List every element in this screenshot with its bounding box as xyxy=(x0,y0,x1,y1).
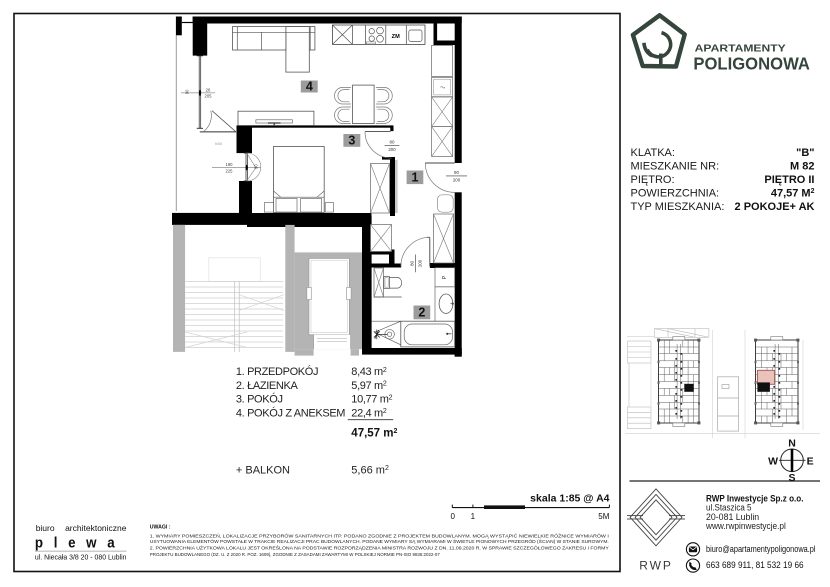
svg-text:0: 0 xyxy=(450,512,455,521)
svg-text:10,77 m2: 10,77 m2 xyxy=(351,394,392,406)
svg-text:biuro: biuro xyxy=(36,523,55,533)
svg-text:PIĘTRO II: PIĘTRO II xyxy=(764,174,814,186)
svg-text:5,97 m2: 5,97 m2 xyxy=(351,380,387,392)
svg-text:225: 225 xyxy=(226,168,234,173)
svg-text:200: 200 xyxy=(418,259,423,267)
svg-text:1: 1 xyxy=(471,512,476,521)
svg-text:RWP: RWP xyxy=(639,558,672,572)
svg-text:ul. Niecała 3/8 20 - 080 Lubl: ul. Niecała 3/8 20 - 080 Lublin xyxy=(35,554,127,561)
svg-text:"B": "B" xyxy=(796,147,814,159)
svg-text:biuro@apartamentypoligonowa.pl: biuro@apartamentypoligonowa.pl xyxy=(706,544,816,554)
svg-text:E: E xyxy=(807,455,814,467)
svg-text:2 POKOJE+ AK: 2 POKOJE+ AK xyxy=(735,201,815,213)
svg-text:90: 90 xyxy=(454,170,459,175)
svg-text:skala 1:85 @ A4: skala 1:85 @ A4 xyxy=(530,493,609,505)
svg-text:PIĘTRO:: PIĘTRO: xyxy=(631,174,675,186)
svg-text:47,57 M2: 47,57 M2 xyxy=(771,188,815,200)
svg-text:S: S xyxy=(788,472,795,484)
svg-text:www.rwpinwestycje.pl: www.rwpinwestycje.pl xyxy=(705,521,786,531)
svg-text:KLATKA:: KLATKA: xyxy=(631,147,675,159)
svg-text:200: 200 xyxy=(453,177,461,182)
svg-text:plewa: plewa xyxy=(35,534,125,551)
svg-text:663 689 911, 81 532 19 66: 663 689 911, 81 532 19 66 xyxy=(706,560,804,570)
svg-text:47,57 m2: 47,57 m2 xyxy=(351,427,397,439)
svg-text:5M: 5M xyxy=(598,512,609,521)
svg-text:M 82: M 82 xyxy=(790,161,814,173)
svg-text:MIESZKANIE NR:: MIESZKANIE NR: xyxy=(631,161,720,173)
svg-text:+ BALKON: + BALKON xyxy=(236,464,290,476)
svg-text:1. PRZEDPOKÓJ: 1. PRZEDPOKÓJ xyxy=(236,365,318,378)
svg-text:3. POKÓJ: 3. POKÓJ xyxy=(236,393,283,406)
svg-text:W: W xyxy=(768,455,778,467)
svg-text:4. POKÓJ Z ANEKSEM: 4. POKÓJ Z ANEKSEM xyxy=(236,406,345,419)
svg-text:UWAGI :: UWAGI : xyxy=(150,525,171,531)
svg-text:26: 26 xyxy=(206,87,211,92)
svg-text:TYP MIESZKANIA:: TYP MIESZKANIA: xyxy=(631,201,725,213)
svg-text:22,4 m2: 22,4 m2 xyxy=(351,407,387,419)
svg-text:POLIGONOWA: POLIGONOWA xyxy=(693,53,810,73)
svg-text:2. ŁAZIENKA: 2. ŁAZIENKA xyxy=(236,380,299,392)
svg-text:3: 3 xyxy=(348,134,355,148)
svg-text:PROJEKTU BUDOWLANEGO (DZ. U. Z: PROJEKTU BUDOWLANEGO (DZ. U. Z 2020 R. P… xyxy=(150,552,440,558)
svg-text:5,66 m2: 5,66 m2 xyxy=(351,464,389,476)
svg-text:N: N xyxy=(788,438,796,450)
svg-text:80: 80 xyxy=(410,260,415,265)
svg-text:200: 200 xyxy=(388,147,396,152)
svg-text:80: 80 xyxy=(390,140,395,145)
svg-text:4: 4 xyxy=(306,80,313,94)
svg-text:90: 90 xyxy=(185,89,190,94)
svg-text:h85: h85 xyxy=(215,141,222,146)
svg-text:205: 205 xyxy=(205,94,213,99)
svg-text:2: 2 xyxy=(418,306,425,320)
svg-text:architektoniczne: architektoniczne xyxy=(65,523,127,533)
svg-text:P: P xyxy=(442,275,448,279)
svg-text:90: 90 xyxy=(253,164,258,169)
svg-text:190: 190 xyxy=(226,162,234,167)
svg-text:1: 1 xyxy=(412,171,419,185)
svg-text:ZM: ZM xyxy=(392,34,400,40)
svg-text:8,43 m2: 8,43 m2 xyxy=(351,366,387,378)
svg-text:1. WYMIARY POMIESZCZEŃ, LOKALI: 1. WYMIARY POMIESZCZEŃ, LOKALIZACJE PRZY… xyxy=(150,532,609,539)
svg-text:POWIERZCHNIA:: POWIERZCHNIA: xyxy=(631,188,720,200)
